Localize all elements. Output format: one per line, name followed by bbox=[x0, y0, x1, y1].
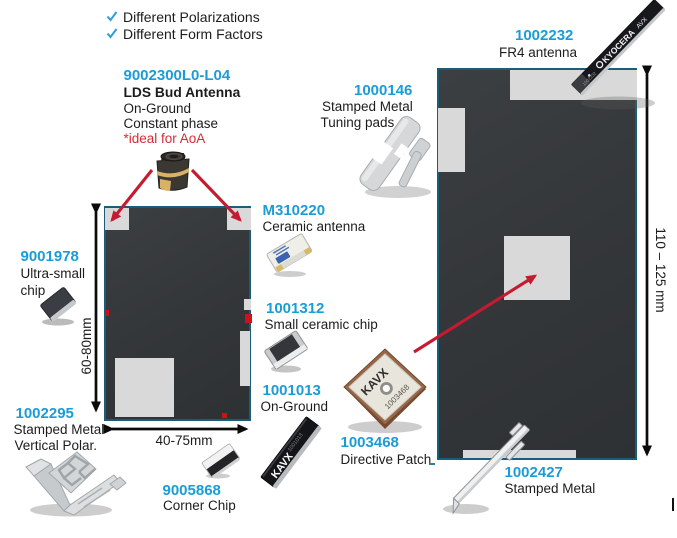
svg-text:KYOCERA: KYOCERA bbox=[600, 27, 637, 64]
